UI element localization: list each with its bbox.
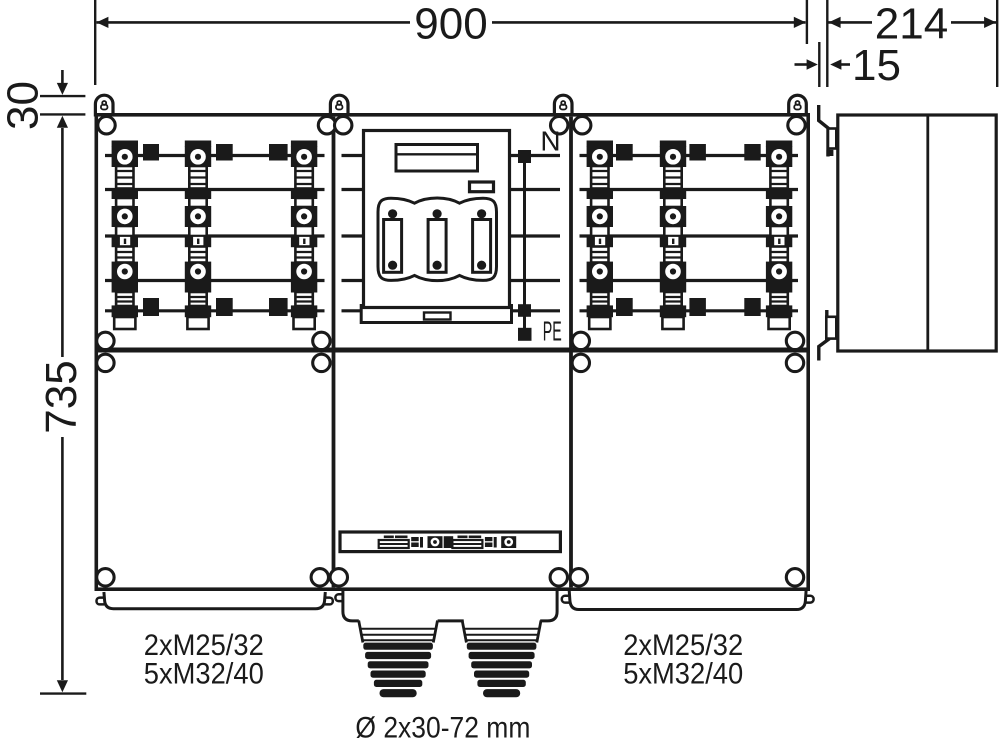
svg-text:15: 15 [852, 41, 901, 90]
svg-text:5xM32/40: 5xM32/40 [623, 658, 743, 691]
svg-text:735: 735 [37, 360, 86, 433]
svg-text:900: 900 [414, 0, 487, 49]
svg-text:N: N [540, 126, 560, 157]
svg-text:30: 30 [0, 81, 48, 130]
svg-text:Ø 2x30-72 mm: Ø 2x30-72 mm [355, 711, 530, 738]
svg-text:PE: PE [543, 316, 562, 347]
svg-text:5xM32/40: 5xM32/40 [144, 658, 264, 691]
